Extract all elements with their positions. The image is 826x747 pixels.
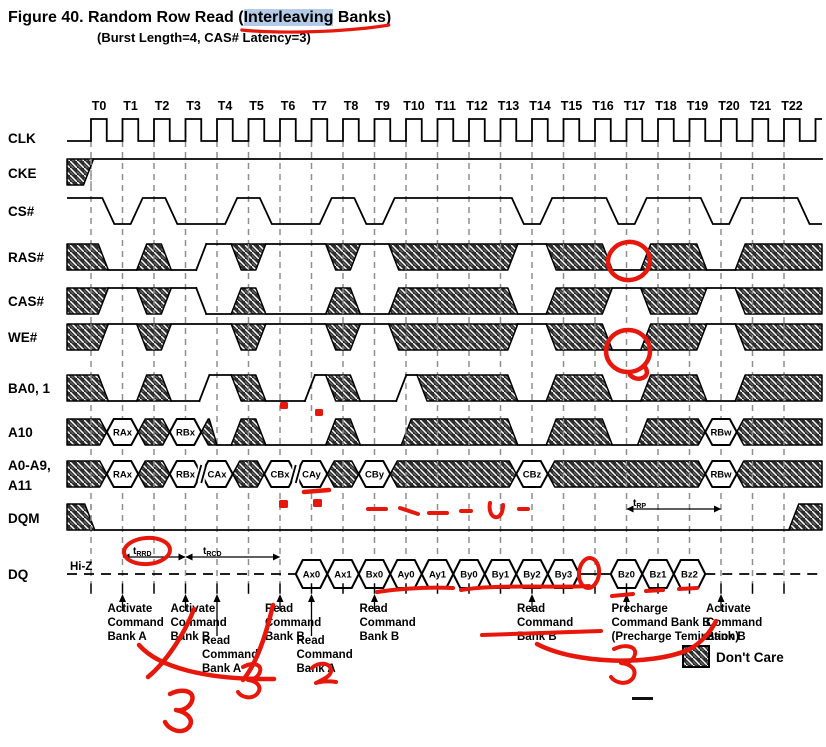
signal-row-ras — [67, 244, 822, 270]
signal-label-a0a9: A0-A9,A11 — [8, 458, 51, 493]
timing-diagram: T0T1T2T3T4T5T6T7T8T9T10T11T12T13T14T15T1… — [0, 0, 826, 747]
command-text: Command — [360, 617, 416, 629]
command-text: Bank A — [108, 631, 147, 643]
signal-row-dq: Ax0Ax1Bx0Ay0Ay1By0By1By2By3Bz0Bz1Bz2Hi-Z — [67, 560, 822, 588]
time-label: T18 — [655, 99, 677, 113]
a0a9-dot-2 — [313, 499, 322, 507]
bus-value-label: By1 — [492, 570, 510, 581]
dont-care-region — [546, 244, 612, 270]
arrowhead — [186, 554, 193, 561]
command-text: Command — [265, 617, 321, 629]
signal-label-ba: BA0, 1 — [8, 381, 51, 396]
time-label: T7 — [312, 99, 327, 113]
signal-label: CAS# — [8, 294, 45, 309]
cay-underline — [304, 490, 329, 492]
command-text: Precharge — [612, 603, 668, 615]
command-arrowhead — [371, 594, 378, 602]
signal-row-a0a9: RAxRBxCAxCBxCAyCByCBzRBw — [67, 461, 822, 487]
time-label: T20 — [718, 99, 740, 113]
signal-row-clk — [67, 119, 822, 141]
dq-underline-1 — [377, 588, 453, 592]
dont-care-region — [737, 461, 822, 487]
bus-value-label: Ax0 — [303, 570, 320, 581]
dq-underline-2 — [461, 586, 589, 590]
bus-value-label: By2 — [523, 570, 540, 581]
command-text: Read — [360, 603, 388, 615]
arrowhead — [179, 554, 186, 561]
bz-dash-3 — [679, 588, 697, 589]
bus-value-label: RBx — [176, 428, 196, 439]
time-label: T17 — [624, 99, 646, 113]
command-text: Activate — [706, 603, 751, 615]
dont-care-region — [735, 375, 822, 401]
dont-care-region — [546, 288, 612, 314]
dont-care-region — [546, 324, 612, 350]
dont-care-region — [737, 419, 822, 445]
bus-value-label: Bz1 — [650, 570, 668, 581]
dont-care-region — [641, 288, 707, 314]
command-arrowhead — [308, 594, 315, 602]
time-label: T3 — [186, 99, 201, 113]
time-label: T19 — [687, 99, 709, 113]
command-text: Bank B — [706, 631, 746, 643]
time-label: T16 — [592, 99, 614, 113]
time-labels: T0T1T2T3T4T5T6T7T8T9T10T11T12T13T14T15T1… — [92, 99, 803, 113]
signal-label: WE# — [8, 330, 38, 345]
command-text: Read — [517, 603, 545, 615]
bus-value-label: Ay1 — [429, 570, 447, 581]
dont-care-region — [67, 244, 108, 270]
dont-care-region — [735, 324, 822, 350]
signal-label: A11 — [8, 478, 33, 493]
dont-care-region — [67, 375, 108, 401]
signal-label: CKE — [8, 166, 37, 181]
time-label: T4 — [218, 99, 233, 113]
time-label: T10 — [403, 99, 425, 113]
timing-param-label: tRRD — [133, 546, 152, 558]
command-arrowhead — [277, 594, 284, 602]
bus-value-label: Bz2 — [681, 570, 698, 581]
timing-param-label: tRCD — [203, 546, 222, 558]
dont-care-region — [546, 419, 612, 445]
time-label: T14 — [529, 99, 551, 113]
bus-value-label: CBx — [270, 470, 290, 481]
signal-row-ba — [67, 375, 822, 401]
command-text: Command Bank B — [612, 617, 711, 629]
signal-label-ras: RAS# — [8, 250, 45, 265]
signal-label: DQ — [8, 567, 28, 582]
signal-row-cke — [67, 159, 822, 185]
hiz-label: Hi-Z — [70, 561, 92, 573]
dont-care-region — [67, 159, 94, 185]
time-label: T5 — [249, 99, 264, 113]
dont-care-region — [789, 504, 822, 530]
bus-value-label: By0 — [460, 570, 477, 581]
dont-care-region — [389, 324, 518, 350]
time-label: T6 — [281, 99, 296, 113]
dont-care-region — [389, 244, 518, 270]
command-arrowhead — [214, 594, 221, 602]
dont-care-region — [735, 288, 822, 314]
dqm-dash-2 — [400, 508, 418, 514]
time-label: T22 — [781, 99, 803, 113]
precharge-underline — [482, 631, 601, 635]
time-label: T0 — [92, 99, 107, 113]
signal-label: DQM — [8, 511, 40, 526]
command-arrowhead — [529, 594, 536, 602]
command-arrowhead — [119, 594, 126, 602]
signal-row-dqm — [67, 504, 822, 530]
command-text: Command — [517, 617, 573, 629]
dont-care-region — [67, 288, 108, 314]
timing-param-label: tRP — [633, 498, 646, 510]
signal-row-cs — [67, 198, 822, 224]
signal-label-a10: A10 — [8, 425, 33, 440]
command-text: Activate — [108, 603, 153, 615]
time-label: T9 — [375, 99, 390, 113]
command-text: Command — [297, 649, 353, 661]
legend-label: Don't Care — [716, 650, 784, 665]
signal-label-dqm: DQM — [8, 511, 40, 526]
digit-3-right — [611, 646, 635, 683]
arrowhead — [714, 506, 721, 513]
dont-care-region — [417, 375, 518, 401]
dont-care-region — [389, 288, 518, 314]
signal-label-clk: CLK — [8, 131, 36, 146]
bus-value-label: By3 — [555, 570, 572, 581]
command-text: Read — [297, 635, 325, 647]
signal-label: CS# — [8, 204, 35, 219]
black-dash — [632, 697, 653, 700]
time-label: T15 — [561, 99, 583, 113]
bus-value-label: RBw — [710, 428, 732, 439]
ba-dot-1 — [280, 402, 288, 409]
command-text: Read — [202, 635, 230, 647]
signal-label-cas: CAS# — [8, 294, 45, 309]
signal-label: A10 — [8, 425, 33, 440]
bus-value-label: CAx — [207, 470, 227, 481]
dont-care-region — [201, 419, 217, 445]
signal-row-cas — [67, 288, 822, 314]
command-text: Command — [202, 649, 258, 661]
time-label: T2 — [155, 99, 170, 113]
arrowhead — [273, 554, 280, 561]
dont-care-region — [67, 461, 107, 487]
bus-value-label: CBy — [365, 470, 385, 481]
a0a9-dot-1 — [279, 500, 288, 508]
signal-label-cke: CKE — [8, 166, 37, 181]
bus-value-label: Ay0 — [397, 570, 414, 581]
signal-row-we — [67, 324, 822, 350]
signal-label-we: WE# — [8, 330, 38, 345]
signal-label: CLK — [8, 131, 36, 146]
digit-3-big — [165, 691, 193, 731]
command-text: Command — [108, 617, 164, 629]
command-text: Command — [171, 617, 227, 629]
time-label: T1 — [123, 99, 138, 113]
time-label: T8 — [344, 99, 359, 113]
bus-value-label: Bz0 — [618, 570, 635, 581]
dont-care-region — [638, 419, 706, 445]
grid-lines — [91, 141, 784, 583]
time-label: T12 — [466, 99, 488, 113]
bus-value-label: CAy — [302, 470, 321, 481]
dont-care-region — [735, 244, 822, 270]
dont-care-region — [641, 375, 707, 401]
bus-value-label: RBw — [710, 470, 732, 481]
cs-wave — [67, 198, 822, 224]
dont-care-region — [67, 324, 108, 350]
command-text: Bank B — [360, 631, 400, 643]
signal-label-dq: DQ — [8, 567, 28, 582]
signal-row-a10: RAxRBxRBw — [67, 419, 822, 445]
bus-value-label: CBz — [523, 470, 542, 481]
dont-care-region — [67, 419, 107, 445]
bus-value-label: Bx0 — [366, 570, 383, 581]
signal-label-cs: CS# — [8, 204, 35, 219]
command-annotations: ActivateCommandBank AActivateCommandBank… — [108, 594, 763, 675]
command-arrowhead — [182, 594, 189, 602]
bz-dash-1 — [612, 594, 633, 596]
signal-label: RAS# — [8, 250, 45, 265]
signal-label: BA0, 1 — [8, 381, 51, 396]
bus-value-label: Ax1 — [334, 570, 352, 581]
time-label: T11 — [435, 99, 456, 113]
clock-wave — [67, 119, 822, 141]
time-label: T21 — [750, 99, 772, 113]
ba-dot-2 — [315, 409, 323, 416]
signal-label: A0-A9, — [8, 458, 51, 473]
dont-care-region — [390, 461, 516, 487]
bus-value-label: RBx — [176, 470, 196, 481]
time-label: T13 — [498, 99, 520, 113]
bus-value-label: RAx — [113, 470, 133, 481]
dont-care-legend: Don't Care — [683, 646, 784, 667]
bz-dash-2 — [646, 590, 663, 591]
dont-care-region — [546, 375, 612, 401]
command-arrowhead — [718, 594, 725, 602]
bus-value-label: RAx — [113, 428, 133, 439]
